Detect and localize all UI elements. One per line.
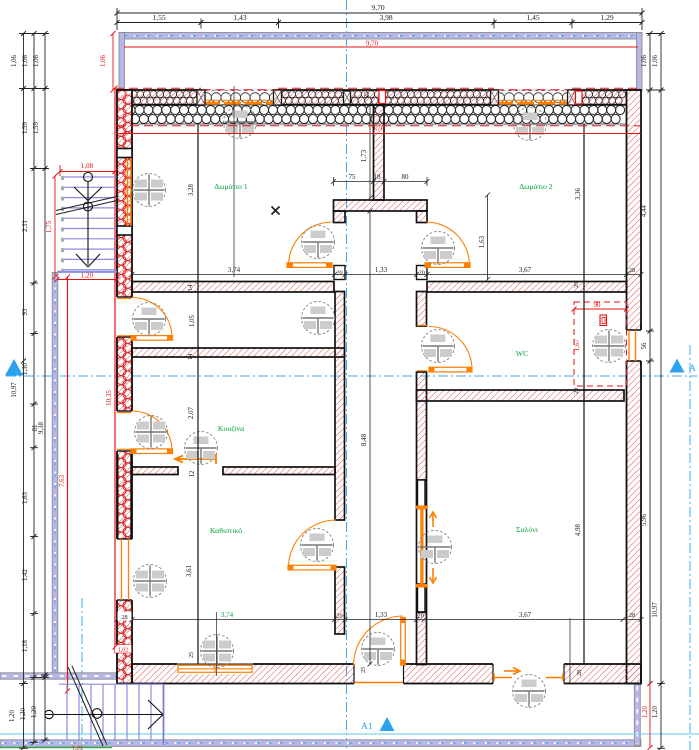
- svg-text:28: 28: [121, 614, 127, 621]
- svg-text:1,33: 1,33: [375, 611, 388, 619]
- svg-text:1,20: 1,20: [642, 705, 649, 717]
- svg-text:Σαλόνι: Σαλόνι: [516, 525, 539, 534]
- svg-text:WC: WC: [516, 349, 529, 358]
- svg-text:20: 20: [573, 282, 580, 288]
- svg-text:A1: A1: [361, 722, 373, 732]
- svg-text:9,70: 9,70: [372, 125, 385, 133]
- svg-text:4,44: 4,44: [641, 204, 648, 216]
- svg-text:20: 20: [418, 613, 424, 620]
- svg-text:1,63: 1,63: [478, 235, 486, 248]
- svg-text:Δωμάτιο 1: Δωμάτιο 1: [214, 182, 247, 191]
- svg-text:3,67: 3,67: [519, 266, 532, 274]
- svg-text:1,45: 1,45: [526, 13, 539, 22]
- svg-text:1,59: 1,59: [33, 121, 40, 133]
- svg-text:Κουζίνα: Κουζίνα: [218, 424, 244, 433]
- svg-text:1,63: 1,63: [22, 491, 29, 503]
- svg-text:1,18: 1,18: [22, 639, 29, 651]
- svg-text:28: 28: [629, 267, 635, 274]
- svg-text:1,42: 1,42: [22, 568, 29, 580]
- svg-text:1,73: 1,73: [360, 149, 368, 162]
- svg-text:10,35: 10,35: [105, 390, 113, 406]
- svg-text:3,61: 3,61: [186, 565, 193, 577]
- svg-text:A: A: [689, 364, 696, 374]
- svg-text:1,20: 1,20: [9, 709, 16, 721]
- svg-text:1,75: 1,75: [45, 220, 53, 233]
- svg-text:3,67: 3,67: [519, 611, 532, 619]
- svg-text:56: 56: [641, 342, 648, 349]
- svg-text:90: 90: [594, 301, 602, 309]
- svg-text:1,20: 1,20: [31, 705, 38, 717]
- svg-text:Δωμάτιο 2: Δωμάτιο 2: [519, 182, 552, 191]
- svg-text:1,06: 1,06: [100, 54, 107, 66]
- svg-text:25: 25: [360, 667, 367, 673]
- svg-text:12: 12: [189, 470, 196, 477]
- svg-text:2,11: 2,11: [22, 220, 29, 232]
- svg-text:1,30: 1,30: [22, 362, 29, 374]
- svg-text:1,05: 1,05: [189, 314, 196, 326]
- svg-text:10,97: 10,97: [652, 602, 659, 618]
- svg-text:10,97: 10,97: [11, 382, 18, 398]
- svg-text:14: 14: [187, 285, 194, 291]
- svg-text:25: 25: [188, 652, 195, 658]
- svg-text:3,74: 3,74: [221, 611, 234, 619]
- svg-text:1,20: 1,20: [72, 746, 83, 750]
- svg-text:9,38: 9,38: [38, 421, 45, 433]
- svg-text:3,28: 3,28: [188, 183, 195, 195]
- svg-text:1,59: 1,59: [22, 121, 29, 133]
- svg-text:93: 93: [22, 308, 29, 315]
- svg-text:1,43: 1,43: [233, 13, 246, 22]
- svg-text:1,06: 1,06: [11, 54, 18, 66]
- svg-text:3,36: 3,36: [575, 187, 582, 199]
- svg-text:20: 20: [336, 613, 342, 620]
- svg-text:1,67: 1,67: [573, 338, 581, 351]
- svg-text:1,06: 1,06: [22, 54, 29, 66]
- svg-text:5,96: 5,96: [641, 513, 648, 525]
- svg-text:2,07: 2,07: [188, 406, 195, 418]
- svg-text:14: 14: [187, 354, 194, 360]
- svg-text:20: 20: [419, 270, 425, 277]
- svg-text:1,06: 1,06: [652, 54, 659, 66]
- svg-text:1,33: 1,33: [375, 266, 388, 274]
- svg-text:25: 25: [363, 92, 370, 98]
- svg-text:9,70: 9,70: [371, 3, 384, 12]
- svg-text:7,63: 7,63: [58, 474, 66, 487]
- svg-text:1,02: 1,02: [118, 647, 129, 653]
- svg-text:28: 28: [629, 612, 635, 619]
- svg-text:1,55: 1,55: [152, 13, 165, 22]
- svg-text:28: 28: [576, 670, 583, 676]
- svg-text:1,08: 1,08: [81, 162, 94, 170]
- svg-text:1,20: 1,20: [81, 272, 94, 280]
- svg-text:18: 18: [374, 173, 382, 181]
- svg-text:1,20: 1,20: [652, 705, 659, 717]
- svg-text:8,48: 8,48: [360, 433, 368, 446]
- svg-text:1,20: 1,20: [20, 707, 27, 719]
- svg-text:1,06: 1,06: [33, 54, 40, 66]
- svg-text:4,98: 4,98: [575, 523, 582, 535]
- svg-text:1,29: 1,29: [600, 13, 613, 22]
- svg-text:75: 75: [349, 173, 357, 181]
- svg-text:80: 80: [402, 173, 410, 181]
- svg-text:3,98: 3,98: [379, 13, 392, 22]
- svg-text:20: 20: [336, 270, 342, 277]
- svg-text:9,70: 9,70: [366, 40, 379, 48]
- svg-text:Καθιστικό: Καθιστικό: [210, 526, 242, 535]
- svg-text:20: 20: [573, 388, 580, 394]
- svg-text:1,06: 1,06: [641, 54, 648, 66]
